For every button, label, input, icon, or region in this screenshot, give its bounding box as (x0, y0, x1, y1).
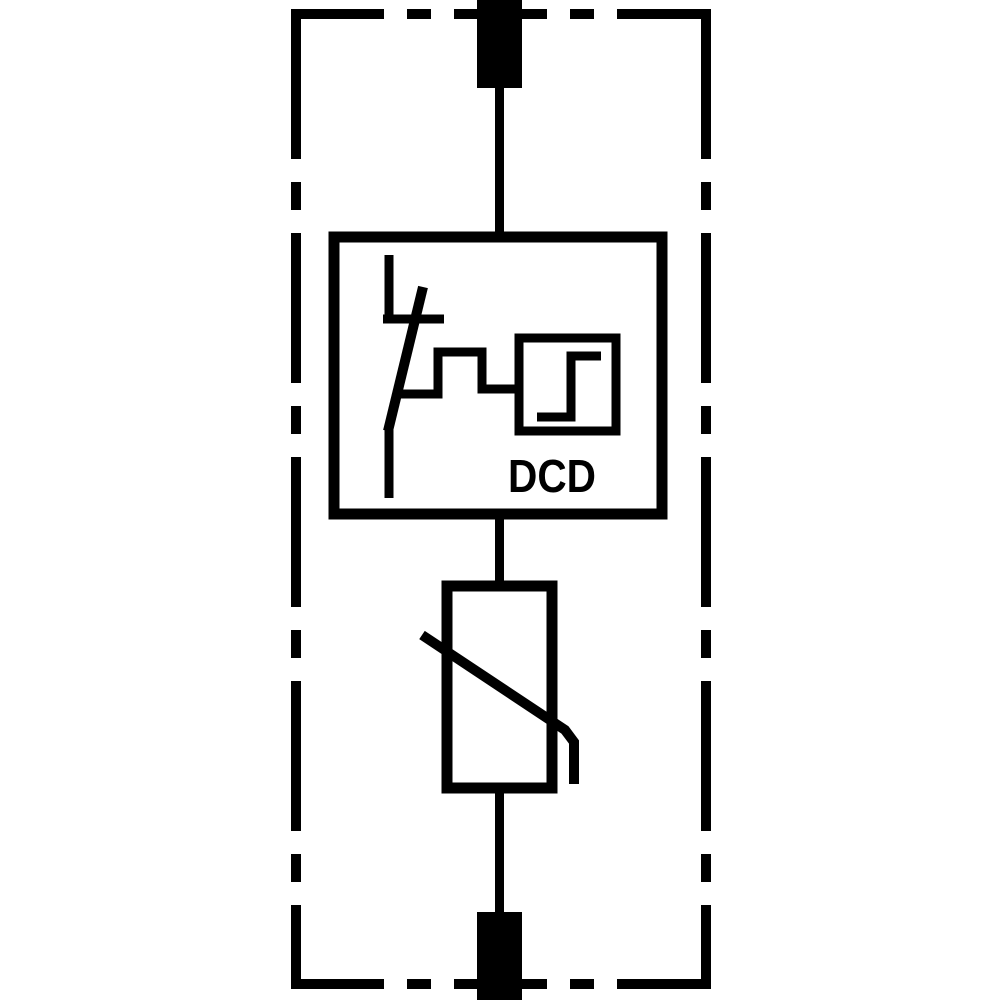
pulse-signal-line-icon (399, 352, 520, 394)
spd-circuit-diagram: DCD (0, 0, 1000, 1000)
dcd-unit: DCD (334, 237, 662, 514)
terminal-stud-top-icon (477, 0, 522, 88)
terminal-stud-bottom-icon (477, 912, 522, 1000)
step-function-trigger-icon (519, 338, 616, 431)
diagram-root-group: DCD (291, 0, 711, 1000)
step-function-glyph (537, 356, 601, 417)
varistor-icon (422, 586, 574, 788)
schematic-canvas: DCD (0, 0, 1000, 1000)
dcd-label: DCD (508, 450, 596, 502)
